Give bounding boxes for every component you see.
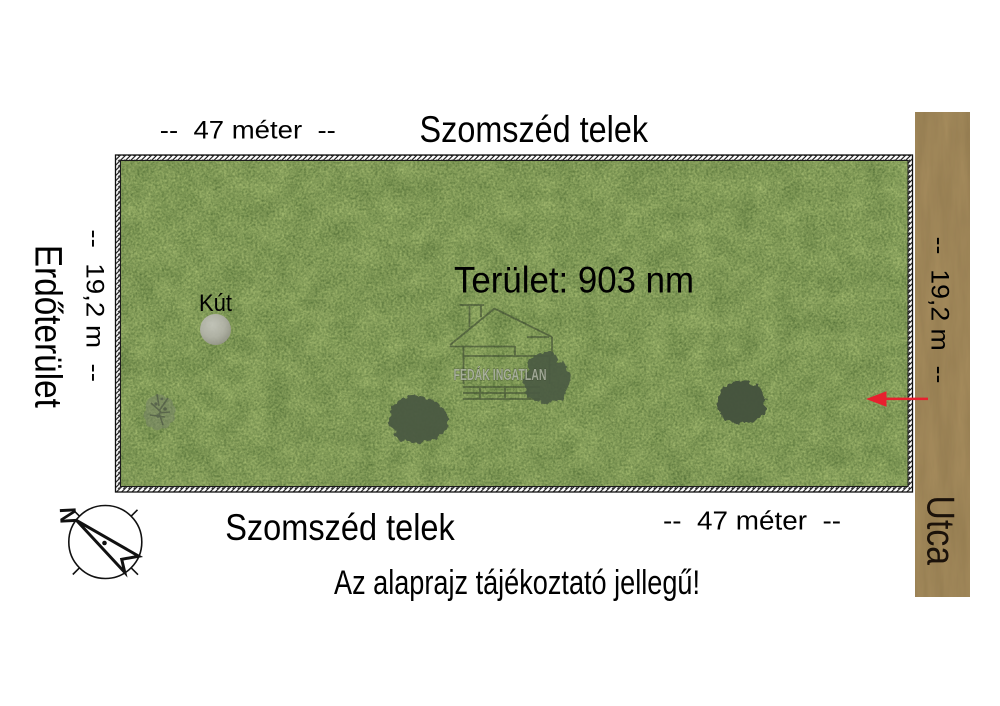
svg-text:Utca: Utca: [919, 496, 962, 566]
svg-text:-- 47 méter --: -- 47 méter --: [160, 117, 336, 145]
svg-text:-- 19,2 m --: -- 19,2 m --: [926, 237, 954, 384]
svg-text:Szomszéd telek: Szomszéd telek: [420, 109, 649, 150]
svg-text:-- 47 méter --: -- 47 méter --: [663, 507, 841, 535]
svg-text:Terület: 903 nm: Terület: 903 nm: [454, 259, 694, 301]
svg-text:Szomszéd telek: Szomszéd telek: [225, 506, 455, 548]
svg-text:Erdőterület: Erdőterület: [27, 245, 69, 408]
svg-text:FEDÁK INGATLAN: FEDÁK INGATLAN: [454, 367, 547, 384]
svg-text:Kút: Kút: [199, 290, 232, 317]
svg-text:Az alaprajz tájékoztató jelleg: Az alaprajz tájékoztató jellegű!: [334, 564, 700, 602]
svg-text:-- 19,2 m --: -- 19,2 m --: [81, 229, 109, 382]
svg-text:N: N: [55, 507, 82, 525]
